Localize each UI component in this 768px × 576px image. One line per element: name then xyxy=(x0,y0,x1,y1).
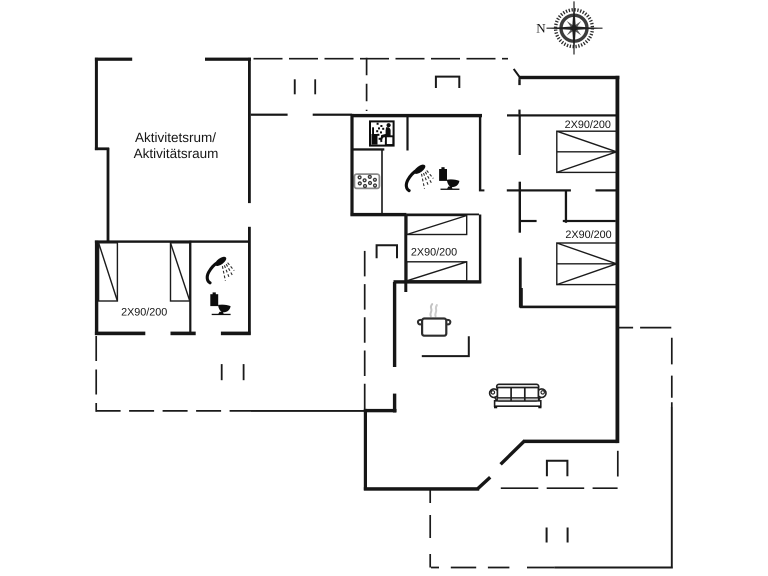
svg-text:Aktivitetsrum/: Aktivitetsrum/ xyxy=(135,130,216,145)
svg-text:Aktivitätsraum: Aktivitätsraum xyxy=(134,146,219,161)
svg-text:2X90/200: 2X90/200 xyxy=(565,119,611,131)
svg-text:2X90/200: 2X90/200 xyxy=(411,247,457,259)
svg-text:2X90/200: 2X90/200 xyxy=(565,229,611,241)
svg-text:N: N xyxy=(536,21,546,36)
svg-text:2X90/200: 2X90/200 xyxy=(121,306,167,318)
